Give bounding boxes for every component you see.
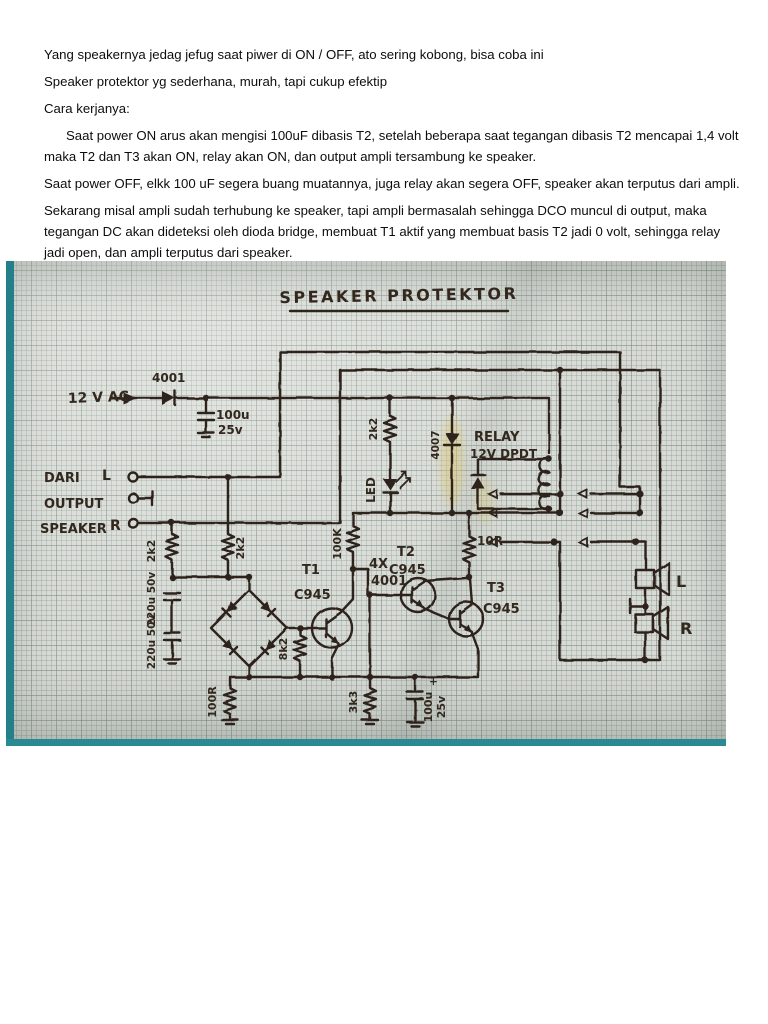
transistor-t3: [449, 602, 483, 636]
label-supply: 12 V AC: [68, 389, 130, 407]
label-src3: SPEAKER: [40, 522, 107, 537]
label-d1: 4001: [152, 371, 185, 385]
transistor-t1: [312, 608, 352, 648]
label-in-l: L: [102, 468, 111, 484]
speaker-left-icon: [636, 563, 669, 595]
label-t2-type: C945: [389, 563, 426, 578]
label-spk-l: L: [676, 572, 686, 591]
schematic-title: SPEAKER PROTEKTOR: [279, 284, 518, 307]
label-r-100: 100R: [206, 686, 219, 718]
label-t1-type: C945: [294, 588, 331, 603]
input-terminal-common: [129, 494, 138, 503]
label-t1: T1: [302, 563, 320, 578]
paragraph: Speaker protektor yg sederhana, murah, t…: [44, 71, 740, 92]
paragraph: Sekarang misal ampli sudah terhubung ke …: [44, 200, 740, 263]
label-t3: T3: [487, 581, 505, 596]
label-r-in-left: 2k2: [145, 540, 158, 563]
diode-d1-icon: [162, 391, 175, 405]
label-led: LED: [364, 477, 378, 503]
label-spk-r: R: [680, 619, 692, 638]
circuit-photo: SPEAKER PROTEKTOR 12 V AC 4001 100u 25v …: [6, 261, 726, 746]
document-page: { "document": { "paragraphs": [ "Yang sp…: [0, 0, 768, 1024]
label-src2: OUTPUT: [44, 497, 104, 512]
relay-contact-icons: [489, 490, 587, 546]
relay-coil: [538, 459, 549, 510]
label-d2: 4007: [430, 430, 442, 459]
label-src1: DARI: [44, 471, 80, 486]
label-r-led: 2k2: [367, 418, 380, 441]
label-c1-value: 100u: [216, 408, 250, 422]
label-r-10: 10R: [477, 534, 503, 548]
input-terminal-l: [129, 473, 138, 482]
schematic-drawing: SPEAKER PROTEKTOR 12 V AC 4001 100u 25v …: [6, 261, 726, 746]
paragraph: Saat power ON arus akan mengisi 100uF di…: [44, 125, 740, 167]
label-bridge1: 4X: [369, 557, 388, 572]
paragraph: Yang speakernya jedag jefug saat piwer d…: [44, 44, 740, 65]
label-relay1: RELAY: [474, 430, 520, 445]
label-in-r: R: [110, 518, 121, 534]
label-r-t1: 8k2: [277, 638, 290, 661]
label-c-in-bottom: 220u 50v: [146, 615, 158, 670]
label-r-3k3: 3k3: [347, 691, 360, 714]
speaker-right-icon: [635, 607, 668, 639]
label-t3-type: C945: [483, 602, 520, 617]
paragraph: Saat power OFF, elkk 100 uF segera buang…: [44, 173, 740, 194]
label-r-in-right: 2k2: [234, 537, 247, 560]
label-c-out-volt: 25v: [435, 695, 448, 718]
label-c1-volt: 25v: [218, 423, 243, 437]
label-c-out-value: 100u: [422, 692, 435, 723]
label-r-100k: 100K: [331, 528, 344, 560]
led-icon: [383, 479, 397, 490]
circuit-wires: [112, 352, 669, 726]
label-c-out-plus: +: [429, 676, 438, 688]
paragraph: Cara kerjanya:: [44, 98, 740, 119]
label-relay2: 12V DPDT: [470, 447, 538, 461]
label-t2: T2: [397, 545, 415, 560]
input-terminal-r: [129, 519, 138, 528]
intro-text: Yang speakernya jedag jefug saat piwer d…: [44, 44, 740, 269]
